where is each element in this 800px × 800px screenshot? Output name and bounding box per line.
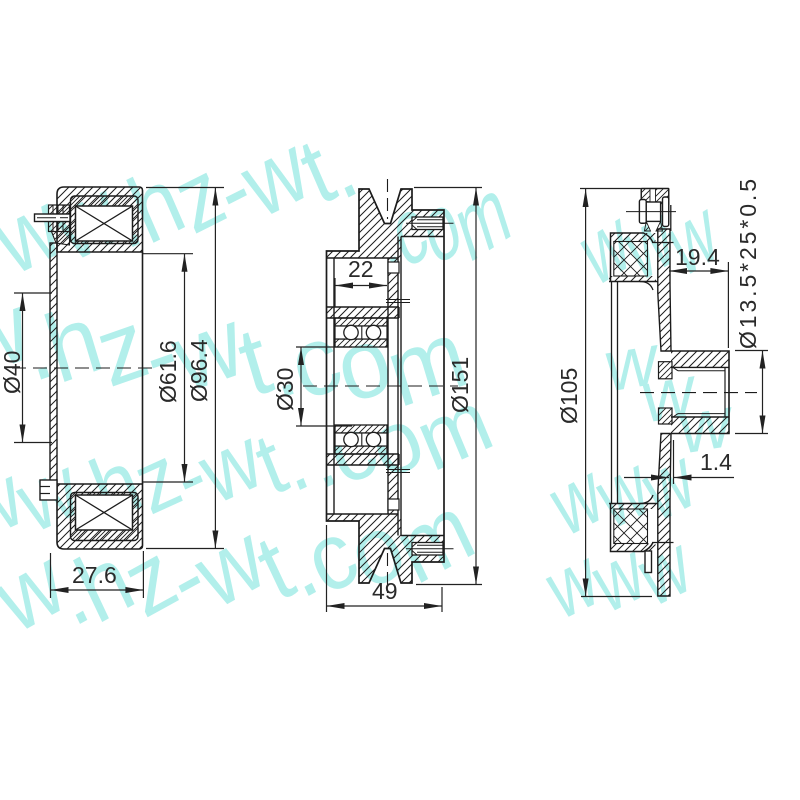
svg-text:27.6: 27.6 (72, 562, 117, 588)
svg-text:19.4: 19.4 (675, 244, 720, 270)
svg-text:22: 22 (348, 256, 374, 282)
svg-text:Ø105: Ø105 (556, 368, 582, 424)
svg-text:Ø13.5*25*0.5: Ø13.5*25*0.5 (735, 179, 761, 349)
svg-text:Ø61.6: Ø61.6 (155, 340, 181, 403)
svg-text:Ø30: Ø30 (272, 368, 298, 411)
svg-text:Ø96.4: Ø96.4 (186, 339, 212, 402)
svg-text:1.4: 1.4 (700, 449, 732, 475)
svg-text:49: 49 (372, 578, 398, 604)
svg-text:Ø40: Ø40 (0, 351, 25, 394)
svg-text:Ø151: Ø151 (447, 357, 473, 413)
